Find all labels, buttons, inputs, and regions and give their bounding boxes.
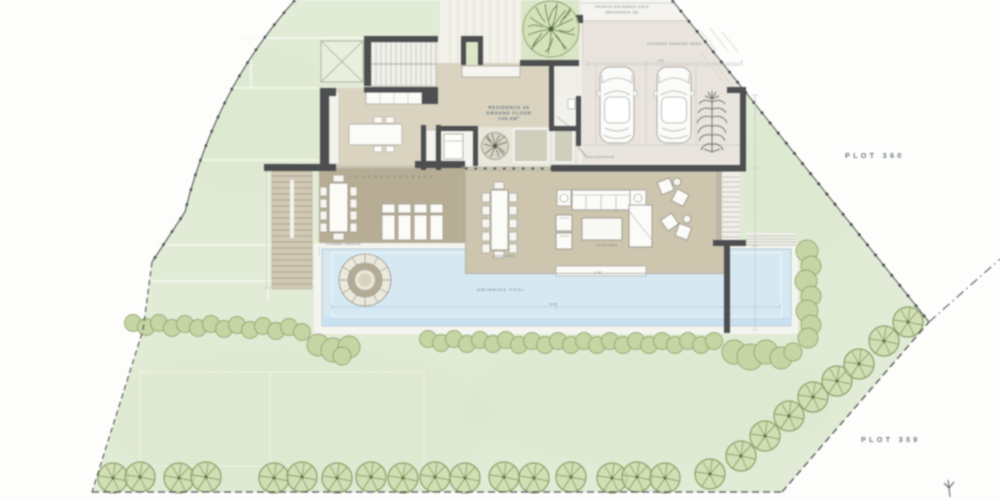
svg-text:6.10: 6.10 bbox=[658, 59, 664, 63]
svg-text:GROUND FLOOR: GROUND FLOOR bbox=[486, 111, 532, 116]
svg-text:COVERED TERRACE: COVERED TERRACE bbox=[326, 242, 361, 246]
svg-text:31.60: 31.60 bbox=[549, 302, 557, 306]
svg-text:PLOT 359: PLOT 359 bbox=[861, 435, 921, 444]
svg-text:11.60: 11.60 bbox=[594, 271, 602, 275]
svg-text:COVERED PARKING AREA: COVERED PARKING AREA bbox=[647, 42, 702, 46]
svg-text:LIVING AREA: LIVING AREA bbox=[596, 243, 617, 247]
svg-text:SIDE ENTRANCE: SIDE ENTRANCE bbox=[585, 155, 615, 159]
svg-text:DINING AREA: DINING AREA bbox=[493, 254, 515, 258]
svg-text:149.0M²: 149.0M² bbox=[498, 116, 520, 121]
svg-text:(RESIDENCE 06): (RESIDENCE 06) bbox=[605, 11, 639, 15]
svg-text:RESIDENCE 06: RESIDENCE 06 bbox=[488, 105, 529, 110]
svg-text:SWIMMING POOL: SWIMMING POOL bbox=[477, 287, 525, 292]
svg-text:PLOT 360: PLOT 360 bbox=[845, 151, 905, 160]
svg-text:C O V E R E D T E R R A C E: C O V E R E D T E R R A C E bbox=[349, 175, 434, 179]
svg-text:PRIVATE ENTRANCE GATE: PRIVATE ENTRANCE GATE bbox=[595, 5, 649, 9]
